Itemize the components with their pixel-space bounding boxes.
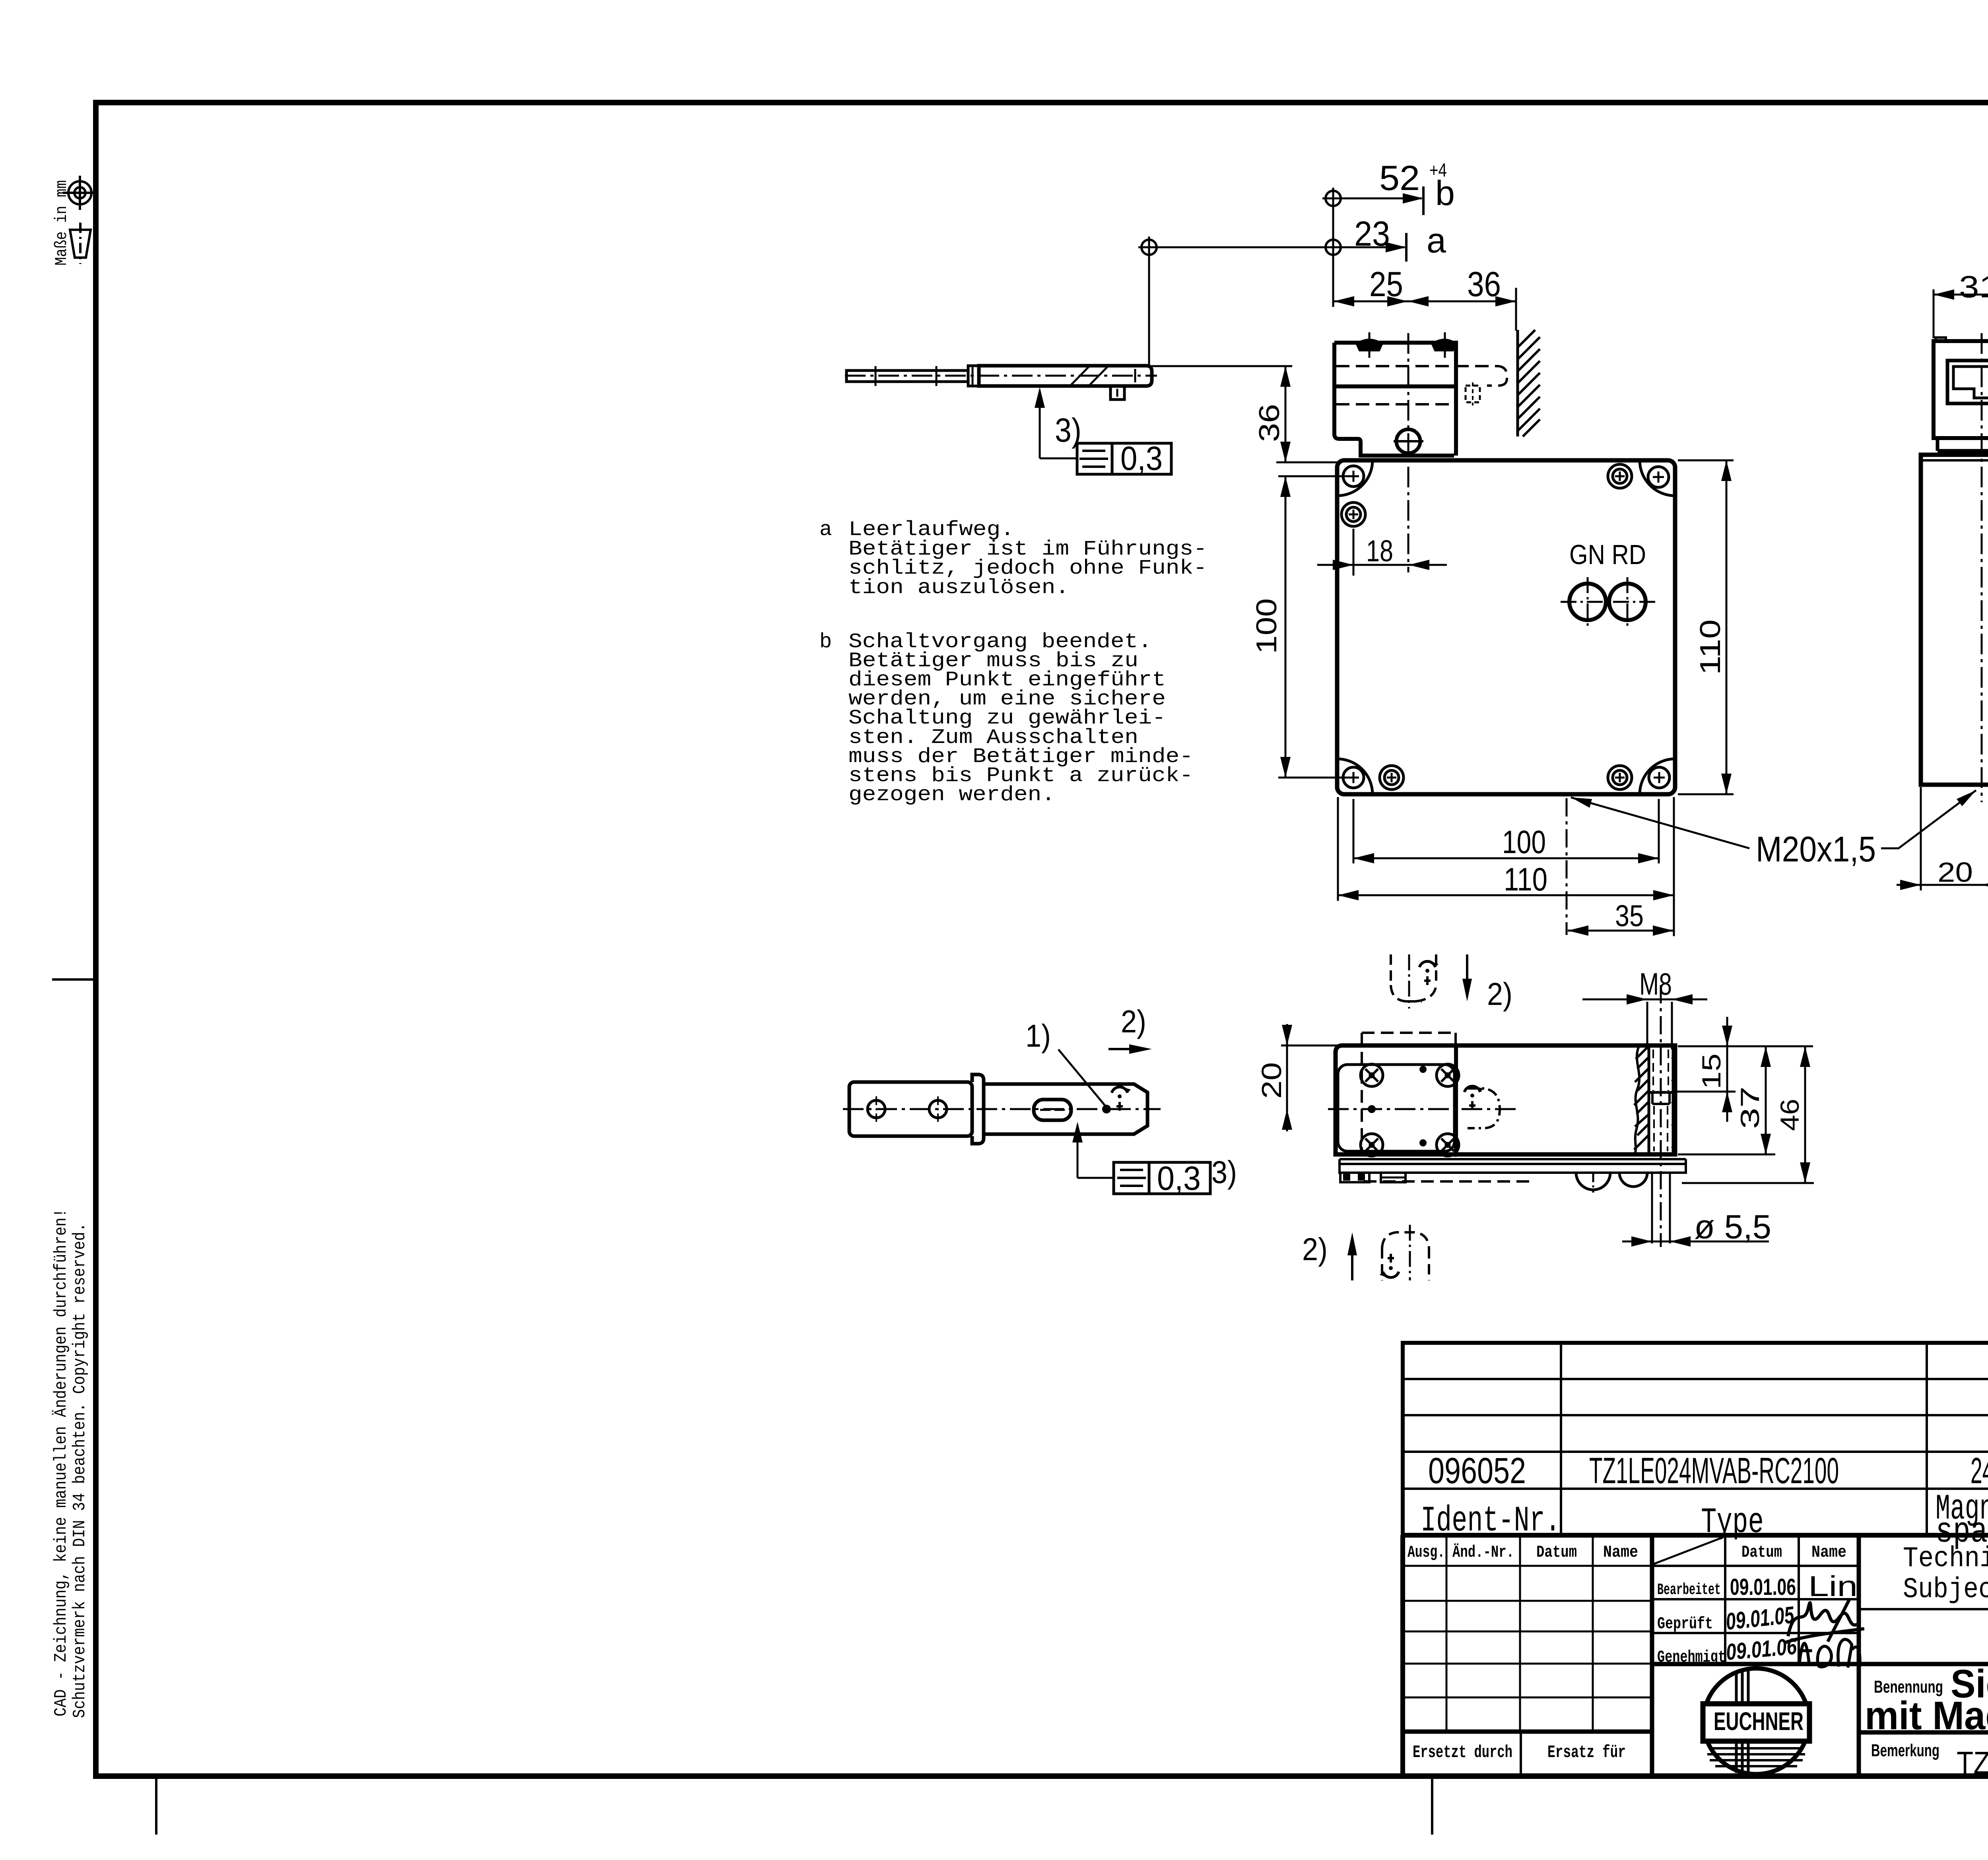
svg-text:3): 3) [1211, 1154, 1237, 1190]
svg-text:18: 18 [1366, 534, 1393, 568]
svg-text:Ersatz für: Ersatz für [1547, 1743, 1626, 1763]
svg-text:tion auszulösen.: tion auszulösen. [848, 576, 1069, 599]
svg-text:Schutzvermerk nach DIN 34 beac: Schutzvermerk nach DIN 34 beachten. Copy… [70, 1223, 90, 1718]
svg-text:Subject to technical modificat: Subject to technical modifications [1903, 1573, 1988, 1606]
svg-text:GN RD: GN RD [1569, 539, 1646, 570]
svg-text:31: 31 [1959, 269, 1988, 304]
svg-text:M20x1,5: M20x1,5 [1756, 830, 1876, 869]
svg-text:096052: 096052 [1428, 1451, 1526, 1491]
svg-text:23: 23 [1354, 214, 1390, 253]
svg-text:25: 25 [1369, 264, 1403, 304]
svg-text:15: 15 [1697, 1053, 1726, 1089]
svg-text:Name: Name [1603, 1543, 1638, 1562]
svg-text:0,3: 0,3 [1157, 1160, 1201, 1197]
svg-text:2): 2) [1487, 976, 1512, 1012]
svg-text:46: 46 [1775, 1099, 1804, 1131]
svg-text:24V: 24V [1971, 1451, 1988, 1491]
svg-text:Datum: Datum [1536, 1543, 1577, 1562]
svg-text:Name: Name [1811, 1543, 1846, 1562]
svg-text:09.01.06: 09.01.06 [1730, 1574, 1796, 1600]
svg-text:ø 5,5: ø 5,5 [1694, 1208, 1771, 1245]
svg-text:100: 100 [1251, 598, 1283, 654]
svg-text:37: 37 [1735, 1086, 1765, 1129]
svg-text:20: 20 [1938, 857, 1973, 888]
svg-text:2): 2) [1121, 1004, 1146, 1039]
svg-text:TZ1LE024MVAB-RC2100: TZ1LE024MVAB-RC2100 [1589, 1451, 1839, 1491]
svg-text:1): 1) [1025, 1018, 1051, 1053]
svg-text:mit Magnetverriegelung: mit Magnetverriegelung [1865, 1693, 1988, 1738]
svg-text:Änd.-Nr.: Änd.-Nr. [1452, 1543, 1514, 1562]
svg-text:M8: M8 [1639, 966, 1672, 1001]
svg-text:110: 110 [1695, 619, 1726, 675]
svg-text:100: 100 [1502, 824, 1546, 860]
svg-text:TZ.LE...MVAB-RC2100: TZ.LE...MVAB-RC2100 [1957, 1745, 1988, 1780]
svg-text:52: 52 [1379, 158, 1420, 198]
svg-text:Geprüft: Geprüft [1657, 1614, 1713, 1633]
svg-text:36: 36 [1467, 264, 1501, 304]
svg-text:a: a [820, 517, 831, 540]
svg-text:35: 35 [1615, 899, 1644, 933]
svg-text:20: 20 [1256, 1062, 1287, 1099]
svg-text:Lin: Lin [1808, 1571, 1858, 1602]
svg-text:Bearbeitet: Bearbeitet [1657, 1581, 1721, 1599]
svg-text:EUCHNER: EUCHNER [1714, 1707, 1804, 1736]
svg-text:Ausg.: Ausg. [1408, 1543, 1445, 1562]
svg-text:110: 110 [1504, 861, 1547, 898]
svg-text:2): 2) [1302, 1232, 1328, 1267]
svg-text:Bemerkung: Bemerkung [1871, 1741, 1939, 1760]
svg-text:b: b [820, 629, 831, 652]
svg-text:b: b [1435, 173, 1455, 213]
svg-text:0,3: 0,3 [1120, 440, 1163, 477]
svg-text:Datum: Datum [1741, 1543, 1782, 1562]
svg-text:gezogen werden.: gezogen werden. [848, 783, 1055, 807]
svg-text:CAD - Zeichnung, keine manuell: CAD - Zeichnung, keine manuellen Änderun… [51, 1208, 71, 1716]
svg-text:Technische Änderungen vorbehal: Technische Änderungen vorbehalten [1903, 1542, 1988, 1575]
svg-text:Ersetzt durch: Ersetzt durch [1413, 1743, 1512, 1763]
svg-text:a: a [1427, 221, 1446, 260]
svg-text:36: 36 [1254, 404, 1285, 442]
